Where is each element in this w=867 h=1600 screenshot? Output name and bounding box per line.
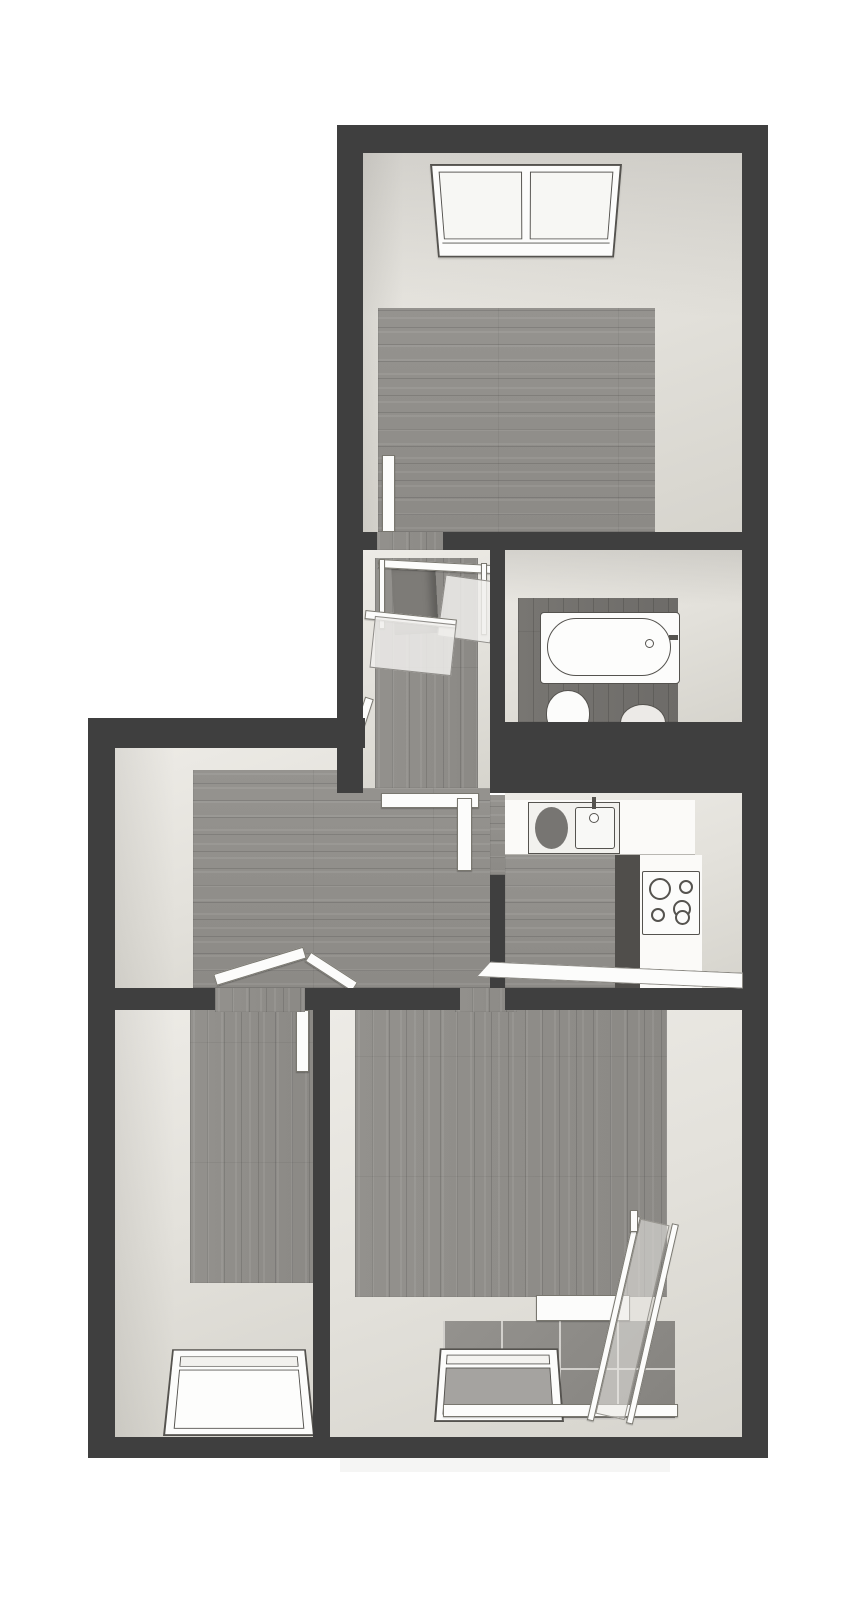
glass-railing [616,1208,716,1437]
floor-patch-left-door [215,988,305,1012]
wall-bottom [88,1437,768,1458]
skylight-sill [442,243,609,253]
wall-bath-bottom [490,722,768,793]
wall-shade [115,1010,175,1437]
room-bathroom [505,550,742,722]
floor-patch-kitchen-door [490,795,505,875]
sink-faucet [589,813,599,823]
glass-railing-post [630,1210,638,1232]
burner-small [679,880,693,894]
skylight-window-bottom [163,1349,313,1436]
ground-shadow [340,1458,670,1472]
burner-large [649,878,671,900]
bottom-left-floor [190,1010,313,1283]
cooktop [642,871,700,935]
skylight-pane-left [439,172,523,240]
bottom-left-door-leaf [296,1010,309,1072]
wall-divider-mid-left [337,532,377,550]
bathtub-inner-rim [547,618,671,676]
wall-shade [115,748,175,988]
bathtub-drain [645,639,654,648]
room-kitchen [505,793,742,988]
wall-lower-top [88,718,365,748]
skylight-pane [174,1370,305,1429]
room-stair-landing [363,550,490,788]
wall-shade [505,550,742,605]
floorplan-canvas [0,0,867,1600]
floor-patch-bedroom-door [375,532,443,550]
burner-double-inner [675,910,690,925]
bathtub-tap [669,635,678,640]
wall-left-upper [337,125,363,793]
wall-top [337,125,768,153]
wall-hall-bottom-c [505,988,742,1010]
sink-drainer [535,807,568,849]
sink-faucet-stem [592,797,596,809]
skylight-sash-bar [179,1356,298,1366]
skylight-pane-right [530,172,614,240]
bathtub [540,612,680,684]
room-bedroom-top [363,153,742,532]
railing-glass-panel [370,616,457,676]
kitchen-door-leaf [457,798,472,871]
living-window-sash [446,1355,550,1365]
bedroom-door-leaf [382,455,395,532]
wall-rooms-divider [313,988,330,1437]
room-bottom-left [115,1010,313,1437]
bedroom-floor [378,308,655,532]
wall-left-lower [88,718,115,1458]
room-living [330,1010,742,1437]
kitchen-sink-unit [528,802,620,854]
burner-small [651,908,665,922]
wall-hall-bottom-a [115,988,215,1010]
skylight-window [430,164,622,257]
